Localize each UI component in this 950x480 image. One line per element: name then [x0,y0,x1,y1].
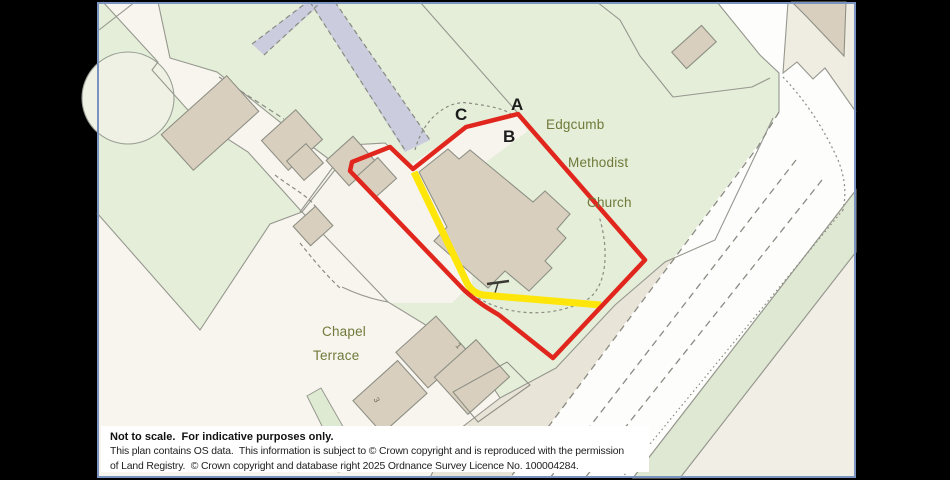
page-background: A B C Edgcumb Methodist Church Chapel Te… [0,0,950,480]
notice-copyright-line2: of Land Registry. © Crown copyright and … [110,460,649,475]
map-canvas: A B C Edgcumb Methodist Church Chapel Te… [0,0,950,480]
point-label-b: B [503,127,515,146]
label-church: Church [587,195,632,210]
notice-box: Not to scale. For indicative purposes on… [101,426,649,472]
label-edgcumb: Edgcumb [546,117,604,132]
label-methodist: Methodist [568,155,628,170]
notice-title: Not to scale. For indicative purposes on… [110,430,649,445]
label-terrace: Terrace [313,348,359,363]
notice-copyright-line1: This plan contains OS data. This informa… [110,445,649,460]
title-plan-map: A B C Edgcumb Methodist Church Chapel Te… [0,0,950,480]
label-chapel: Chapel [322,324,366,339]
point-label-c: C [455,105,467,124]
tree-canopy-circle [82,52,174,144]
point-label-a: A [511,95,523,114]
